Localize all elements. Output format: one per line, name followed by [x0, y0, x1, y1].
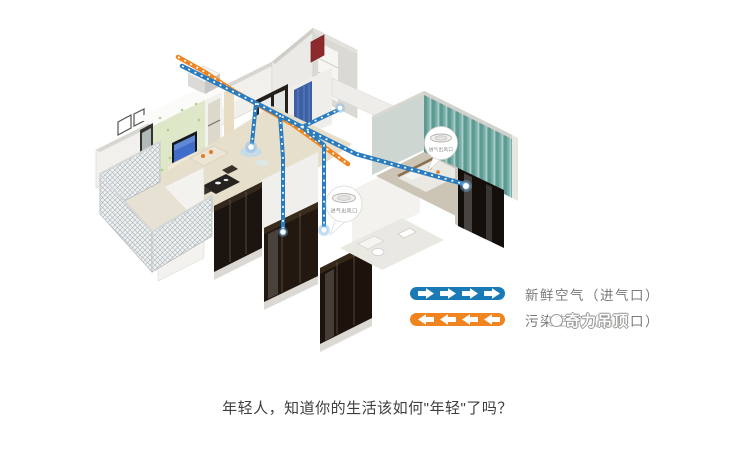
callout-label: 进气出风口 [330, 208, 357, 215]
fresh-air-label: 新鲜空气（进气口） [525, 284, 660, 304]
caption-text: 年轻人，知道你的生活该如何"年轻"了吗？ [0, 397, 735, 418]
fresh-air-arrows-icon [410, 287, 505, 300]
diffuser-glow [460, 180, 472, 192]
legend: 新鲜空气（进气口） 污染空气（排气口） 奇力吊顶 [410, 287, 710, 339]
diffuser-glow [335, 103, 345, 113]
diffuser-glow [245, 141, 257, 153]
exhaust-air-arrows-icon [410, 313, 505, 326]
legend-polluted-air-row: 污染空气（排气口） 奇力吊顶 [410, 313, 710, 326]
wall-picture [118, 115, 131, 135]
diffuser-glow [318, 224, 330, 236]
article-image: 进气出风口 进气出风口 新鲜空气（进气口） [0, 0, 735, 457]
legend-fresh-air-row: 新鲜空气（进气口） [410, 287, 710, 300]
diffuser-glow [278, 227, 288, 237]
brand-logo-icon [550, 314, 563, 327]
brand-watermark-text: 奇力吊顶 [565, 310, 629, 331]
apartment-illustration: 进气出风口 进气出风口 [0, 0, 735, 457]
brand-watermark: 奇力吊顶 [548, 310, 631, 331]
callout-label: 进气出风口 [429, 146, 454, 153]
